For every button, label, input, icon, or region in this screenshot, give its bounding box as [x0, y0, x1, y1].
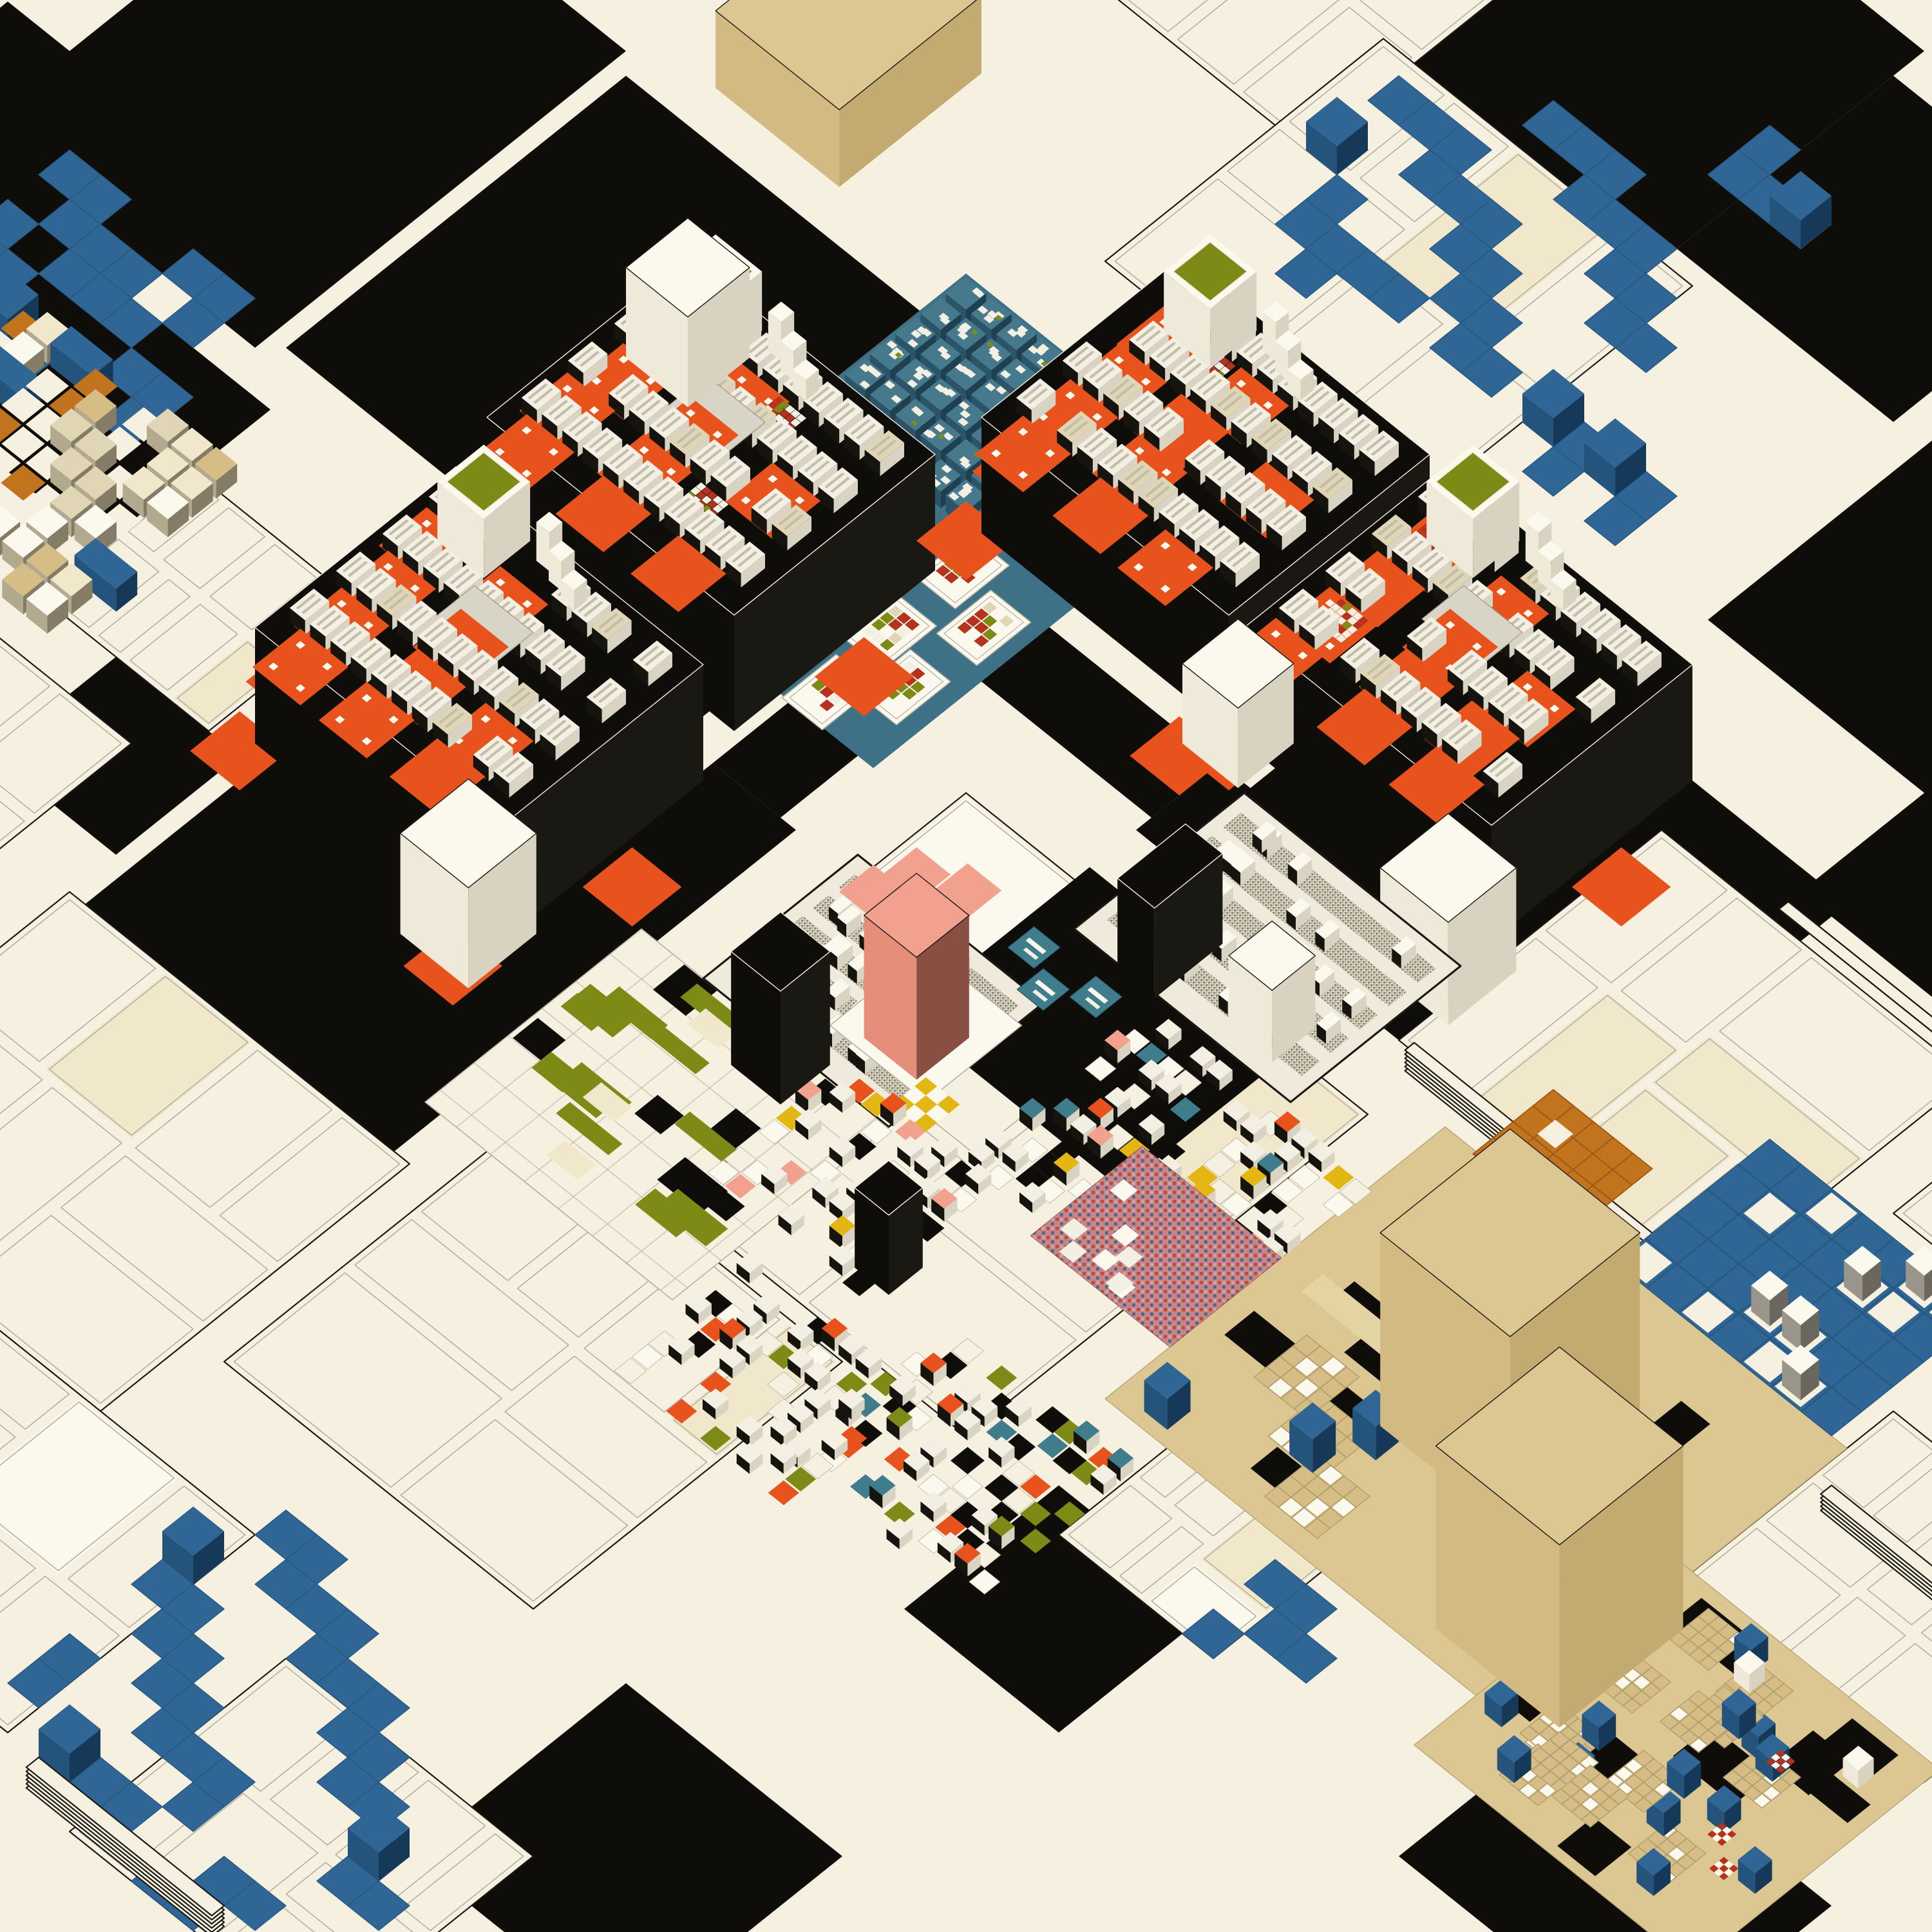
black-tower	[855, 1160, 923, 1295]
artwork-svg	[0, 0, 1932, 1932]
black-tower	[731, 912, 830, 1104]
generative-art-viewport	[0, 0, 1932, 1932]
salmon-cube	[864, 873, 969, 1080]
